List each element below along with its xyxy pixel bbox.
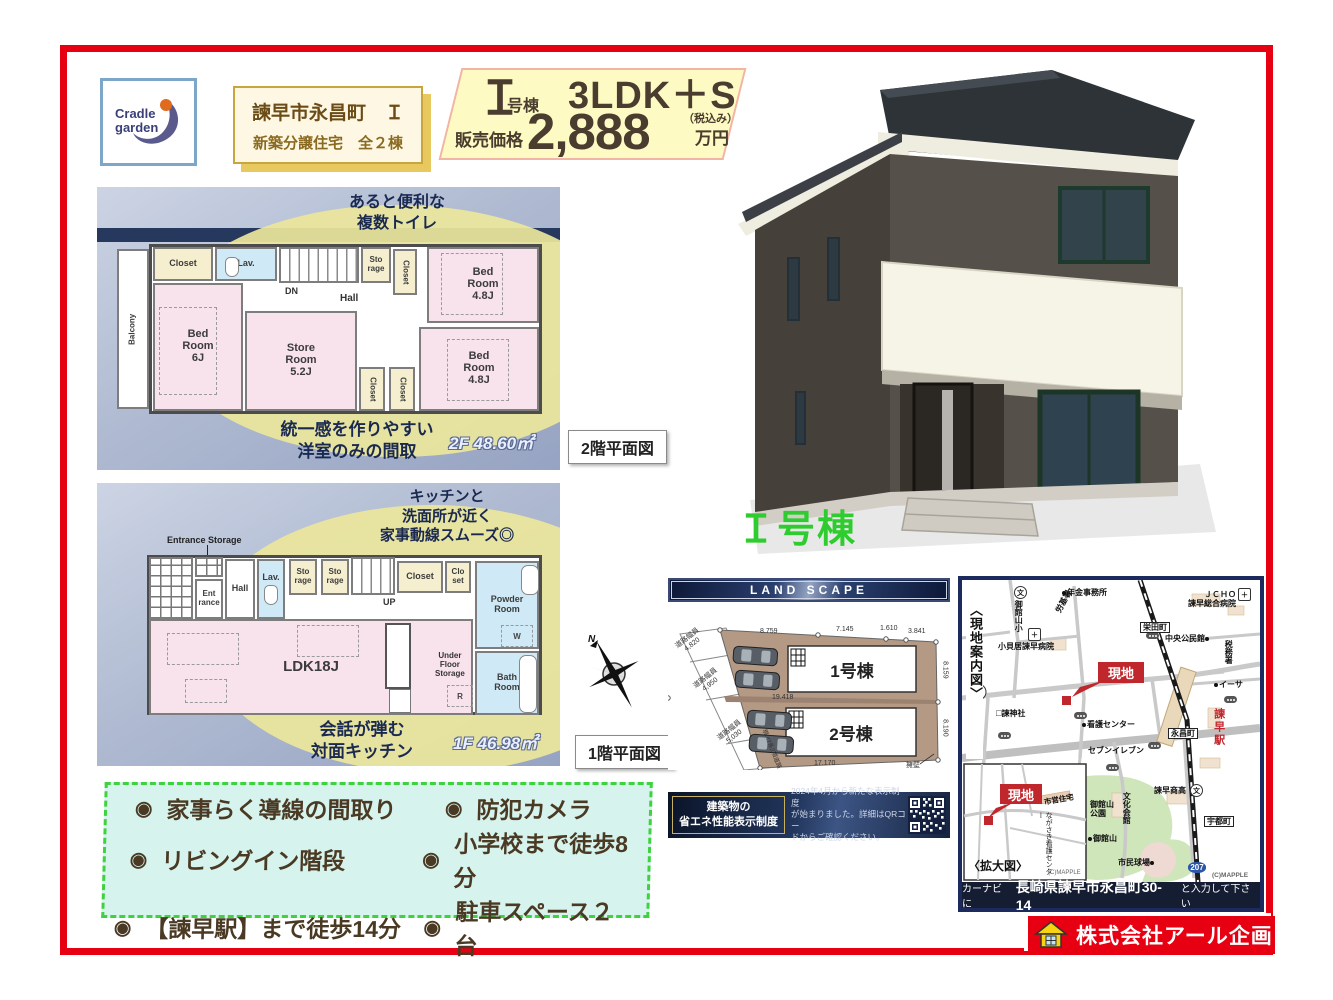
features-box: ◉ 家事らく導線の間取り ◉ 防犯カメラ ◉ リビングイン階段 ◉ 小学校まで徒… [101, 782, 653, 918]
dim-right2: 8.190 [941, 719, 949, 737]
bullet-icon: ◉ [114, 915, 132, 940]
logo-line2: garden [115, 121, 158, 135]
bullet-icon: ◉ [422, 847, 440, 872]
price-banner: Ｉ 号棟 3LDK＋S 販売価格 2,888 （税込み） 万円 [455, 64, 745, 160]
room-storage-2f: Sto rage [361, 247, 391, 283]
bullet-icon: ◉ [135, 796, 153, 821]
map-credit: (C)MAPPLE [1048, 870, 1081, 877]
bed-furniture-outline [159, 307, 217, 395]
room-closet-b1: Closet [359, 367, 385, 411]
room-lav-1f: Lav. [257, 559, 285, 619]
flyer-page: Cradle garden 諫早市永昌町 Ｉ 新築分譲住宅 全２棟 Ｉ 号棟 3… [0, 0, 1333, 1000]
map-credit: (C)MAPPLE [1212, 872, 1248, 879]
poi-eishomachi: 永昌町 [1168, 728, 1198, 739]
price-label: 販売価格 [455, 126, 523, 151]
qr-code [908, 796, 946, 834]
floorplan-1f-panel: キッチンと 洗面所が近く 家事動線スムーズ◎ Entrance Storage … [97, 483, 560, 766]
plan-tag-2f: 2階平面図 [568, 430, 667, 464]
navi-suffix: と入力して下さい [1181, 880, 1260, 910]
area-1f: 1F 46.98㎡ [453, 729, 537, 754]
feature-row: ◉ 家事らく導線の間取り ◉ 防犯カメラ [117, 791, 640, 825]
poi-hospital-w: 小貝居諫早病院 [998, 642, 1054, 651]
stove-icon [389, 689, 411, 713]
feature-label: 家事らく導線の間取り [166, 791, 397, 825]
bullet-icon: ◉ [423, 915, 441, 940]
hospital-icon: ＋ [1238, 588, 1251, 601]
plan-tag-1f: 1階平面図 [575, 735, 674, 769]
stairs-up-label: UP [383, 597, 396, 607]
dim-right1: 8.159 [941, 661, 949, 679]
property-title-box: 諫早市永昌町 Ｉ 新築分譲住宅 全２棟 [233, 86, 423, 164]
dim-mid: 19.418 [772, 694, 793, 702]
room-store: Store Room 5.2J [245, 311, 357, 411]
energy-desc: 2024年4月から新たな表示制度 が始まりました。詳細はQRコー ドからご確認く… [791, 786, 908, 843]
site-marker [984, 816, 993, 825]
poi-zeimusho: 税務署 [1224, 640, 1233, 674]
poi-shoko-text: 諫早商高 [1154, 786, 1186, 795]
property-location: 諫早市永昌町 Ｉ [252, 98, 404, 125]
feature-item: ◉ リビングイン階段 [129, 842, 422, 876]
poi-utomachi: 宇都町 [1204, 816, 1234, 827]
logo-line1: Cradle [115, 107, 158, 121]
logo-text: Cradle garden [115, 107, 158, 136]
bullet-icon: ◉ [129, 847, 147, 872]
sofa-outline [167, 633, 239, 665]
room-closet2-1f: Clo set [445, 561, 471, 593]
navi-address: 長崎県諫早市永昌町30-14 [1016, 877, 1177, 913]
lot2-label: 2号棟 [786, 708, 916, 756]
bathtub-icon [521, 565, 539, 595]
poi-jinja-text: 諫神社 [1001, 709, 1025, 718]
room-hall-1f: Hall [225, 559, 255, 619]
feature-label: リビングイン階段 [161, 842, 346, 876]
retaining-wall-label: 擁壁 [906, 762, 920, 770]
poi-nagasaki-kango: ながさき看護センター [1036, 812, 1052, 876]
area-2f: 2F 48.60㎡ [449, 429, 533, 454]
map-side-label-text: 〈現地案内図〉 [967, 603, 982, 753]
bullet-icon: ◉ [445, 796, 463, 821]
compass-n-label: N [588, 634, 595, 646]
under-floor-storage-label: Under Floor Storage [435, 651, 465, 679]
room-entrance: Ent rance [195, 579, 223, 619]
house-icon [1034, 920, 1068, 950]
bus-stop-icon [1106, 764, 1119, 771]
energy-title: 建築物の 省エネ性能表示制度 [672, 796, 785, 834]
bed-furniture-outline [441, 253, 503, 315]
poi-jinja: □諫神社 [996, 708, 1025, 718]
poi-shoko: 諫早商高 [1154, 786, 1186, 795]
feature-label: 防犯カメラ [476, 791, 592, 825]
poi-kango: 看護センター [1082, 720, 1135, 729]
poi-kango-text: 看護センター [1087, 720, 1135, 729]
callout-top-2f: あると便利な 複数トイレ [247, 193, 547, 235]
feature-item: ◉ 小学校まで徒歩8分 [421, 825, 638, 893]
stairs-1f [351, 557, 395, 595]
poi-chuo: 中央公民館 [1165, 634, 1210, 643]
feature-item: ◉ 【諫早駅】まで徒歩14分 [114, 910, 424, 944]
bus-stop-icon [1224, 696, 1237, 703]
feature-label: 小学校まで徒歩8分 [453, 825, 639, 893]
dim-top1: 8.759 [760, 628, 778, 636]
school-icon: 文 [1014, 586, 1027, 599]
kitchen-counter [385, 623, 411, 689]
stairs-2f [279, 247, 359, 283]
poi-kyujo-text: 市民球場 [1118, 858, 1150, 867]
bed-furniture-outline [447, 339, 509, 401]
feature-row: ◉ 【諫早駅】まで徒歩14分 ◉ 駐車スペース２台 [113, 893, 637, 961]
price-value: 2,888 [527, 102, 650, 161]
callout-top-1f: キッチンと 洗面所が近く 家事動線スムーズ◎ [337, 487, 557, 546]
room-closet-tl: Closet [153, 247, 213, 281]
poi-iisa: イーサ [1214, 680, 1243, 689]
school-icon: 文 [1190, 784, 1203, 797]
company-name: 株式会社アール企画 [1076, 920, 1273, 950]
navi-bar: カーナビに 長崎県諫早市永昌町30-14 と入力して下さい [962, 882, 1260, 908]
dining-table-outline [297, 625, 359, 657]
lot1-label: 1号棟 [788, 646, 916, 692]
poi-bunka: 文化会館 [1122, 792, 1131, 836]
poi-seven: セブンイレブン [1088, 746, 1144, 755]
feature-item: ◉ 防犯カメラ [445, 791, 592, 825]
inset-label: 〈拡大図〉 [968, 860, 1028, 874]
site-marker [1062, 696, 1071, 705]
property-subtitle: 新築分譲住宅 全２棟 [253, 132, 403, 153]
room-balcony: Balcony [117, 249, 149, 409]
price-unit: 万円 [695, 124, 729, 149]
route-shield: 207 [1188, 862, 1206, 873]
poi-mitakeyama-text: 御館山 [1093, 834, 1117, 843]
fridge-box: R [447, 685, 473, 707]
landscape-header: LAND SCAPE [668, 578, 950, 602]
hospital-icon: ＋ [1028, 628, 1041, 641]
entrance-storage-box [195, 557, 223, 577]
navi-prefix: カーナビに [962, 880, 1012, 910]
map-side-label: 〈現地案内図〉 [966, 586, 983, 759]
room-closet-b1-label: Closet [368, 377, 377, 401]
dim-top2: 7.145 [836, 626, 854, 634]
poi-iisa-text: イーサ [1219, 680, 1243, 689]
poi-kyujo: 市民球場 [1118, 858, 1155, 867]
feature-label: 駐車スペース２台 [454, 893, 637, 961]
entrance-tile-area [149, 557, 193, 619]
room-closet-top-label: Closet [401, 260, 410, 284]
bus-stop-icon [1148, 742, 1161, 749]
dim-top4: 3.841 [908, 628, 926, 636]
room-closet-b2-label: Closet [398, 377, 407, 401]
room-closet-top: Closet [393, 249, 417, 295]
dim-top3: 1.610 [880, 625, 898, 633]
landscape-panel: LAND SCAPE [668, 578, 950, 770]
room-lav-2f: Lav. [215, 247, 277, 281]
room-lav-1f-label: Lav. [262, 573, 279, 583]
bus-stop-icon [998, 732, 1011, 739]
toilet-icon [225, 257, 239, 277]
room-sto1: Sto rage [289, 559, 317, 595]
poi-station: 諫早駅 [1212, 708, 1225, 756]
feature-item: ◉ 家事らく導線の間取り [135, 791, 446, 825]
feature-label: 【諫早駅】まで徒歩14分 [145, 910, 401, 944]
poi-chuo-text: 中央公民館 [1165, 634, 1205, 643]
feature-row: ◉ リビングイン階段 ◉ 小学校まで徒歩8分 [115, 825, 639, 893]
company-banner: 株式会社アール企画 [1028, 916, 1275, 954]
site-flag-inset: 現地 [1000, 784, 1042, 804]
poi-jcho: ＪＣＨＯ 諫早総合病院 [1174, 590, 1236, 608]
washer-box: W [501, 625, 533, 647]
room-sto2: Sto rage [321, 559, 349, 595]
feature-item: ◉ 駐車スペース２台 [423, 893, 637, 961]
entrance-storage-label: Entrance Storage [167, 535, 242, 545]
room-balcony-label: Balcony [129, 313, 138, 344]
dim-bottom: 17.170 [814, 760, 835, 768]
room-lav-2f-label: Lav. [237, 259, 254, 269]
poi-park: 御館山 公園 [1090, 800, 1114, 818]
energy-banner: 建築物の 省エネ性能表示制度 2024年4月から新たな表示制度 が始まりました。… [668, 792, 950, 838]
rug-outline [185, 679, 227, 703]
floorplan-2f-panel: あると便利な 複数トイレ Balcony Closet Lav. DN Hall… [97, 187, 560, 470]
brand-logo: Cradle garden [100, 78, 197, 166]
stairs-dn-label: DN [285, 286, 298, 296]
poi-sakaedamachi: 栄田町 [1140, 622, 1170, 633]
house-unit-caption: Ｉ号棟 [737, 498, 857, 553]
bus-stop-icon [1074, 712, 1087, 719]
room-closet-1f: Closet [397, 561, 443, 593]
toilet-icon [264, 585, 278, 605]
area-map: 〈現地案内図〉 文 御館山小 年金事務所 労基署 ＪＣＨＯ 諫早総合病院 ＋ 栄… [958, 576, 1264, 912]
room-closet-b2: Closet [389, 367, 415, 411]
hall-2f-label: Hall [340, 293, 358, 305]
house-rendering [730, 62, 1238, 562]
bathtub-icon [519, 655, 537, 713]
poi-mitakeyama: 御館山 [1088, 834, 1117, 843]
